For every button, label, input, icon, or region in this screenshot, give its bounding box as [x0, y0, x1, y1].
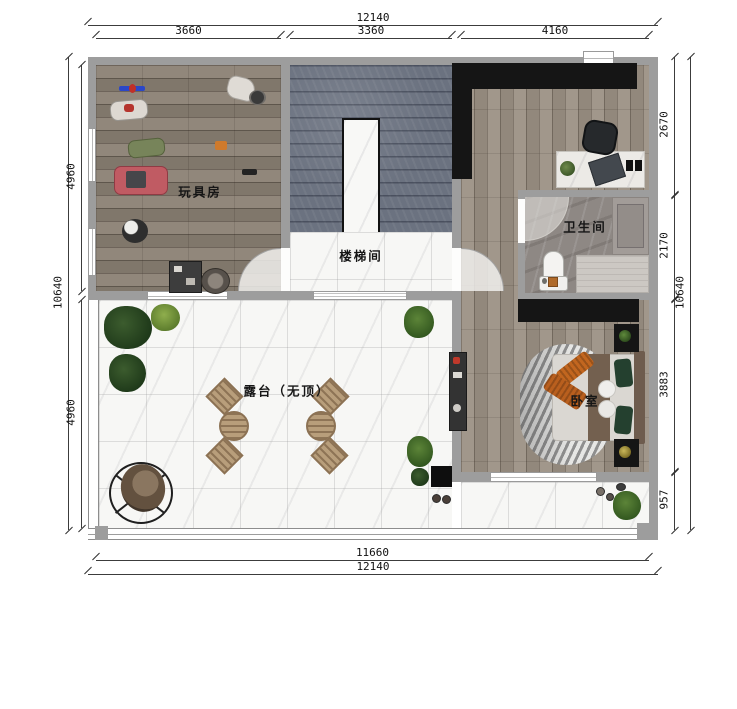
railing-post-right	[637, 523, 658, 540]
toy-cabinet-item2-icon	[186, 278, 195, 285]
stair-void-island	[342, 118, 380, 232]
terrace-railing-bottom	[88, 528, 658, 540]
toy-orange-icon	[215, 141, 227, 150]
dim-top-seg-2-label: 3360	[358, 24, 385, 37]
door-gap-bedroom	[452, 248, 461, 291]
landing-sliding-door	[313, 291, 407, 300]
dim-left-seg-2-label: 4960	[65, 383, 78, 443]
dim-top-seg-2: 3360	[290, 38, 452, 39]
desk-speaker-right-icon	[635, 160, 642, 171]
toy-motorcycle-tank-icon	[124, 104, 134, 112]
terrace-plant-4-icon	[404, 306, 434, 338]
terrace-plant-6-icon	[411, 468, 429, 486]
terrace-railing-left	[88, 300, 99, 528]
door-gap-bathroom	[518, 199, 525, 243]
toilet-tray-icon	[548, 277, 558, 287]
dim-top-total-label: 12140	[356, 11, 389, 24]
dim-right-seg-2-label: 2170	[658, 216, 671, 276]
pillow-white-2-icon	[598, 400, 616, 418]
walkway-plant-icon	[613, 491, 641, 520]
nightstand-lamp-icon	[619, 446, 631, 458]
bedroom-closet	[518, 299, 639, 322]
stairwell-label: 楼梯间	[339, 246, 383, 265]
bathroom-label: 卫生间	[563, 217, 607, 236]
tv-cabinet-item-white-icon	[453, 372, 462, 378]
dim-right-seg-3-label: 3883	[658, 354, 671, 414]
dim-top-seg-1: 3660	[96, 38, 281, 39]
terrace-plant-2-icon	[151, 304, 180, 331]
floor-plan-canvas: 玩具房 楼梯间 卫生间 露台（无顶） 卧室 12140 3660 3360 41…	[0, 0, 737, 709]
bedroom-window-bottom	[490, 472, 597, 482]
corner-black-box	[431, 466, 452, 487]
terrace-plant-3-icon	[109, 354, 146, 392]
dim-left-seg-2: 4960	[81, 300, 82, 528]
pillow-green-1-icon	[614, 358, 634, 388]
toy-room-label: 玩具房	[178, 182, 222, 201]
shower-tray	[617, 204, 644, 248]
walkway-pot-1-icon	[596, 487, 605, 496]
dim-right-total: 10640	[690, 57, 691, 530]
toy-black-bar-icon	[242, 169, 257, 175]
dim-right-seg-4: 957	[674, 472, 675, 530]
dim-right-seg-4-label: 957	[658, 470, 671, 530]
dim-right-total-label: 10640	[674, 262, 687, 322]
desk-speaker-left-icon	[626, 160, 633, 171]
door-gap-toyroom	[281, 248, 290, 291]
toy-hat-icon	[249, 90, 266, 105]
toy-cabinet-item-icon	[174, 266, 182, 272]
pot-1-icon	[432, 494, 441, 503]
pillow-white-1-icon	[598, 380, 616, 398]
dim-left-total: 10640	[68, 57, 69, 530]
bedroom-label: 卧室	[570, 391, 599, 410]
terrace-label: 露台（无顶）	[243, 381, 330, 400]
dim-left-seg-1-label: 4960	[65, 147, 78, 207]
dim-bottom-inner-label: 11660	[356, 546, 389, 559]
bathroom-wall-top	[518, 190, 649, 197]
dim-top-seg-3-label: 4160	[542, 24, 569, 37]
toy-plane-body-icon	[129, 84, 136, 93]
terrace-plant-1-icon	[104, 306, 152, 349]
railing-post-left	[95, 526, 108, 540]
terrace-plant-5-icon	[407, 436, 433, 467]
toilet-item-icon	[542, 278, 547, 284]
dim-bottom-total-label: 12140	[356, 560, 389, 573]
toy-room-window-left-2	[88, 228, 96, 276]
tv-cabinet-item2-icon	[453, 404, 461, 412]
dim-right-seg-1: 2670	[674, 57, 675, 195]
walkway-pot-2-icon	[606, 493, 614, 501]
dim-left-total-label: 10640	[52, 262, 65, 322]
pot-2-icon	[442, 495, 451, 504]
dim-right-seg-1-label: 2670	[658, 95, 671, 155]
toy-stool	[201, 268, 230, 294]
desk-plant-icon	[560, 161, 575, 176]
desk-chair	[580, 118, 619, 156]
dim-left-seg-1: 4960	[81, 65, 82, 291]
tv-cabinet-item-red-icon	[453, 357, 460, 364]
dim-right-seg-3: 3883	[674, 299, 675, 472]
wardrobe-horizontal	[470, 63, 637, 89]
toy-panda-ball-icon	[122, 219, 148, 243]
dim-top-seg-1-label: 3660	[175, 24, 202, 37]
toy-room-window-left-1	[88, 128, 96, 182]
terrace-table-2	[306, 411, 336, 441]
walkway-pot-3-icon	[616, 483, 626, 491]
wardrobe-vertical	[452, 63, 472, 179]
bathtub	[576, 255, 649, 293]
pillow-green-2-icon	[614, 405, 634, 435]
dim-bottom-total: 12140	[88, 574, 658, 575]
toy-car-window-icon	[126, 171, 146, 188]
nightstand-plant-1-icon	[619, 330, 631, 342]
dim-top-seg-3: 4160	[461, 38, 649, 39]
bed-headboard	[634, 351, 645, 444]
